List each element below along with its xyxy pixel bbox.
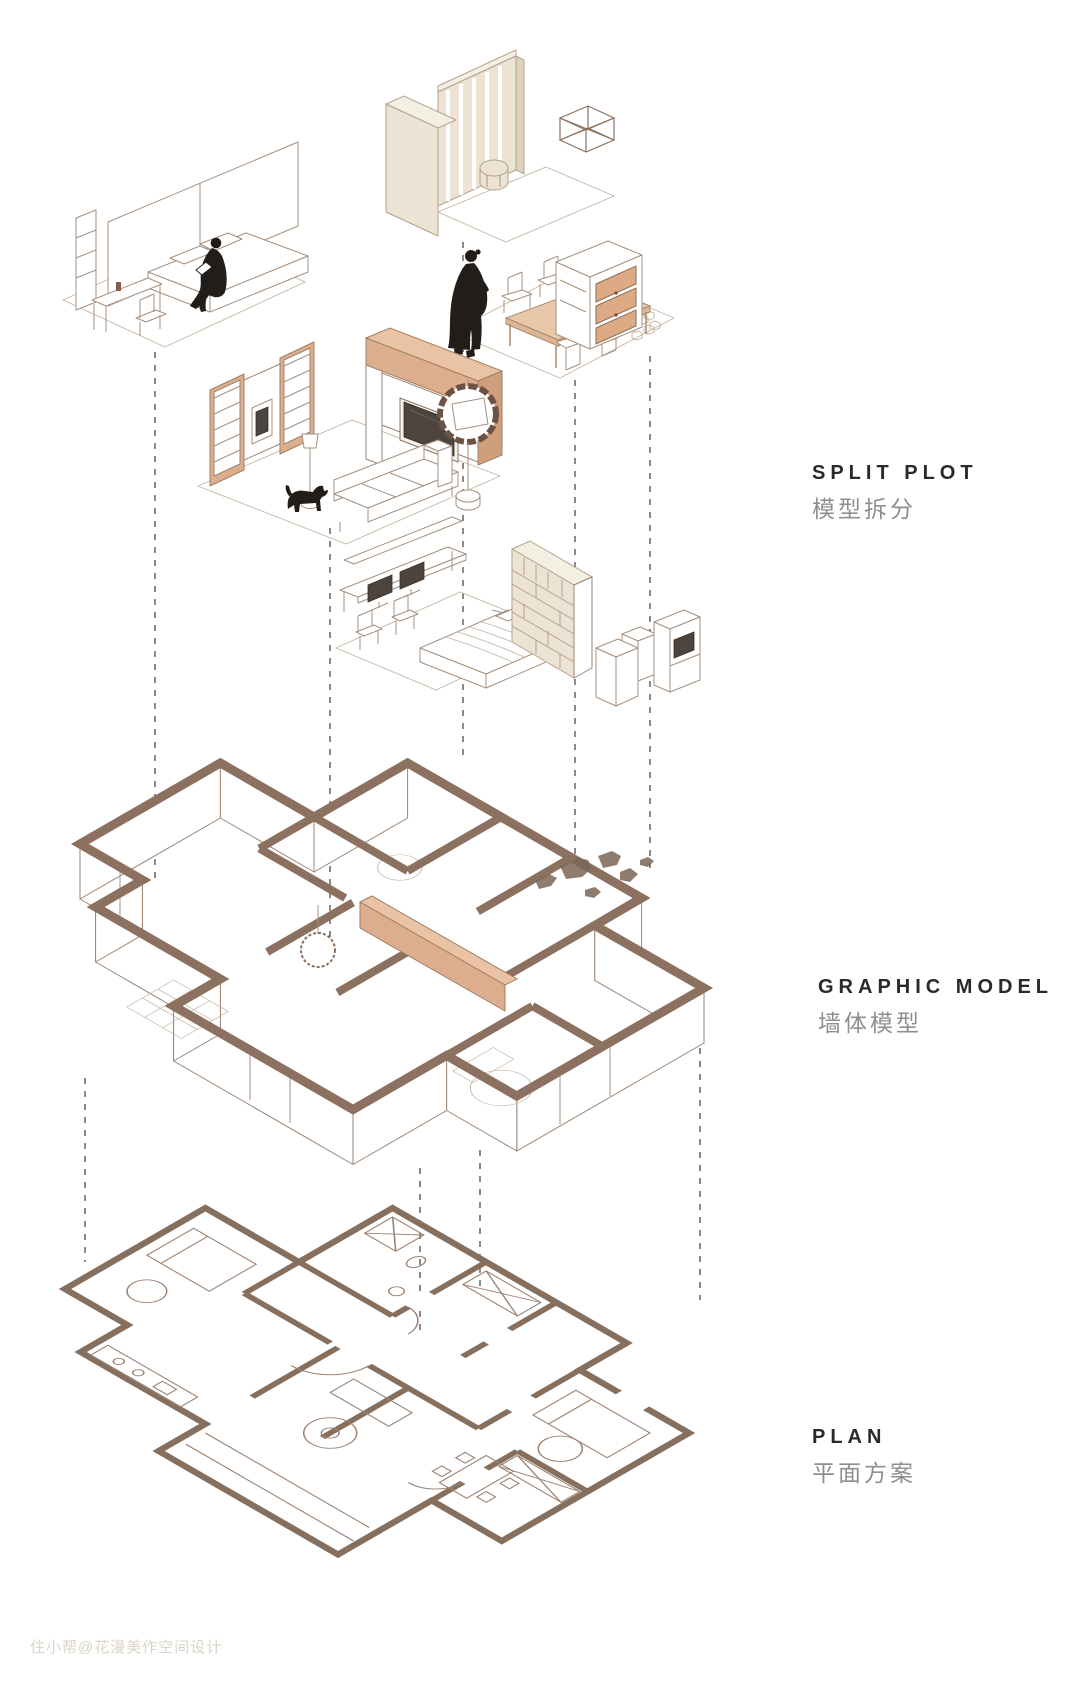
exploded-axonometric-poster: SPLIT PLOT 模型拆分 GRAPHIC MODEL 墙体模型 PLAN …: [0, 0, 1080, 1688]
watermark: 住小帮@花漫美作空间设计: [30, 1636, 222, 1657]
label-graphic-model-en: GRAPHIC MODEL: [818, 976, 1053, 999]
model-accent-tv-wall: [360, 896, 517, 1011]
label-split-plot-en: SPLIT PLOT: [812, 462, 978, 485]
floor-plan: [0, 1154, 736, 1595]
label-graphic-model-zh: 墙体模型: [818, 1004, 922, 1038]
module-living: [198, 328, 502, 544]
label-plan-zh: 平面方案: [812, 1454, 916, 1488]
geometric-pendant-lamp: [560, 106, 614, 152]
module-cloakroom: [386, 50, 614, 242]
tv-console: [654, 610, 700, 692]
diagram-canvas: [0, 0, 1080, 1688]
module-master-bedroom: [63, 142, 308, 347]
label-split-plot-zh: 模型拆分: [812, 490, 916, 524]
label-plan-en: PLAN: [812, 1426, 886, 1449]
bookshelf-wall: [210, 342, 314, 486]
person-standing-icon: [448, 249, 489, 358]
desk-object: [116, 282, 121, 291]
wardrobe-boxes: [596, 627, 656, 706]
module-study-bedroom: [336, 517, 700, 706]
sofa: [334, 440, 458, 532]
wall-model: [80, 763, 704, 1168]
sideboard-cabinet: [556, 241, 642, 349]
